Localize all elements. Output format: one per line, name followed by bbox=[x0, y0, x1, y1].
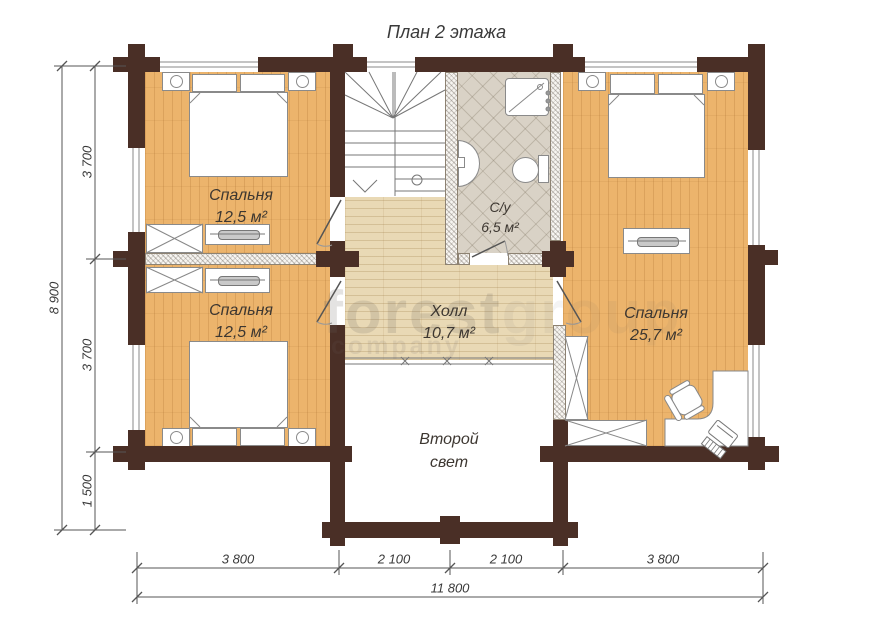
room-area-hall: 10,7 м² bbox=[423, 325, 475, 343]
dresser-handles bbox=[210, 234, 686, 280]
dim-bottom-segment-0: 3 800 bbox=[222, 552, 255, 567]
shower-detail bbox=[509, 83, 550, 112]
bed-folds bbox=[190, 93, 704, 427]
room-label-double-height-1: Второй bbox=[419, 431, 478, 449]
floor-plan: План 2 этажа bbox=[0, 0, 893, 635]
room-label-bedroom-top-left: Спальня bbox=[209, 187, 273, 205]
dim-bottom-total: 11 800 bbox=[431, 581, 470, 596]
room-label-hall: Холл bbox=[431, 303, 468, 321]
room-label-bedroom-right: Спальня bbox=[624, 305, 688, 323]
room-area-bathroom: 6,5 м² bbox=[481, 219, 519, 235]
dim-left-segment-1: 3 700 bbox=[80, 339, 95, 372]
page-title: План 2 этажа bbox=[0, 22, 893, 43]
dim-bottom-segment-2: 2 100 bbox=[490, 552, 523, 567]
room-label-double-height-2: свет bbox=[430, 454, 468, 472]
room-area-bedroom-right: 25,7 м² bbox=[630, 327, 682, 345]
room-label-bedroom-bottom-left: Спальня bbox=[209, 302, 273, 320]
room-area-bedroom-top-left: 12,5 м² bbox=[215, 209, 267, 227]
window-frames bbox=[133, 62, 759, 437]
room-label-bathroom: С/у bbox=[490, 199, 511, 215]
dim-left-segment-2: 1 500 bbox=[80, 475, 95, 508]
room-area-bedroom-bottom-left: 12,5 м² bbox=[215, 324, 267, 342]
dim-bottom-segment-3: 3 800 bbox=[647, 552, 680, 567]
dim-bottom-segment-1: 2 100 bbox=[378, 552, 411, 567]
staircase bbox=[345, 72, 445, 196]
dim-left-total: 8 900 bbox=[47, 282, 62, 315]
dim-left-segment-0: 3 700 bbox=[80, 146, 95, 179]
office-chair bbox=[662, 379, 707, 424]
